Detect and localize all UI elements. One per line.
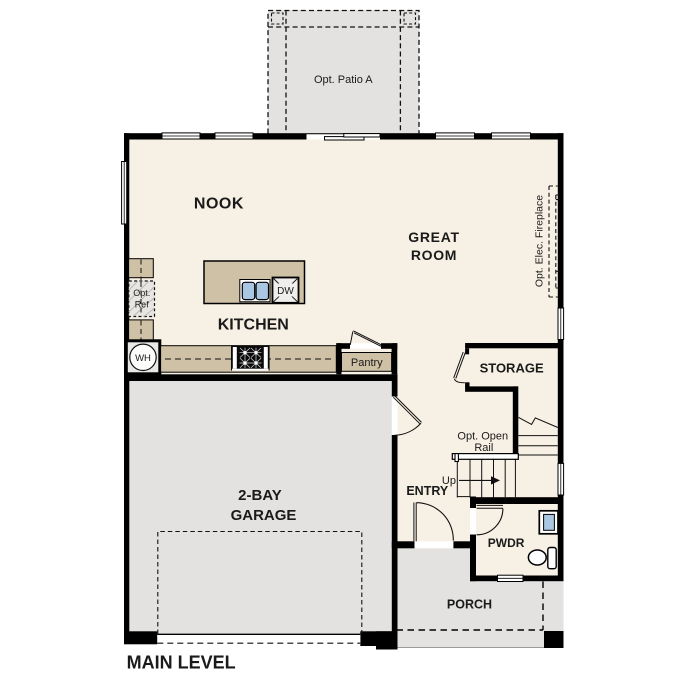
svg-text:Opt.: Opt. <box>133 288 150 298</box>
svg-text:Rail: Rail <box>474 442 493 454</box>
svg-text:GREAT: GREAT <box>408 229 459 245</box>
svg-text:DW: DW <box>277 286 294 297</box>
svg-text:KITCHEN: KITCHEN <box>218 317 289 334</box>
svg-text:MAIN LEVEL: MAIN LEVEL <box>127 653 236 673</box>
svg-text:PWDR: PWDR <box>488 536 525 550</box>
svg-text:Opt. Open: Opt. Open <box>457 431 508 443</box>
svg-text:ROOM: ROOM <box>411 247 457 263</box>
svg-text:ENTRY: ENTRY <box>406 484 449 498</box>
svg-text:PORCH: PORCH <box>447 598 492 612</box>
svg-text:2-BAY: 2-BAY <box>238 487 282 504</box>
svg-text:Pantry: Pantry <box>351 357 383 369</box>
svg-text:GARAGE: GARAGE <box>231 507 297 524</box>
svg-text:Ref: Ref <box>135 300 150 310</box>
svg-text:STORAGE: STORAGE <box>480 360 544 375</box>
svg-text:Opt. Elec. Fireplace: Opt. Elec. Fireplace <box>533 195 545 287</box>
svg-text:WH: WH <box>135 353 151 364</box>
svg-text:NOOK: NOOK <box>194 195 244 212</box>
svg-text:Opt. Patio A: Opt. Patio A <box>314 74 373 86</box>
